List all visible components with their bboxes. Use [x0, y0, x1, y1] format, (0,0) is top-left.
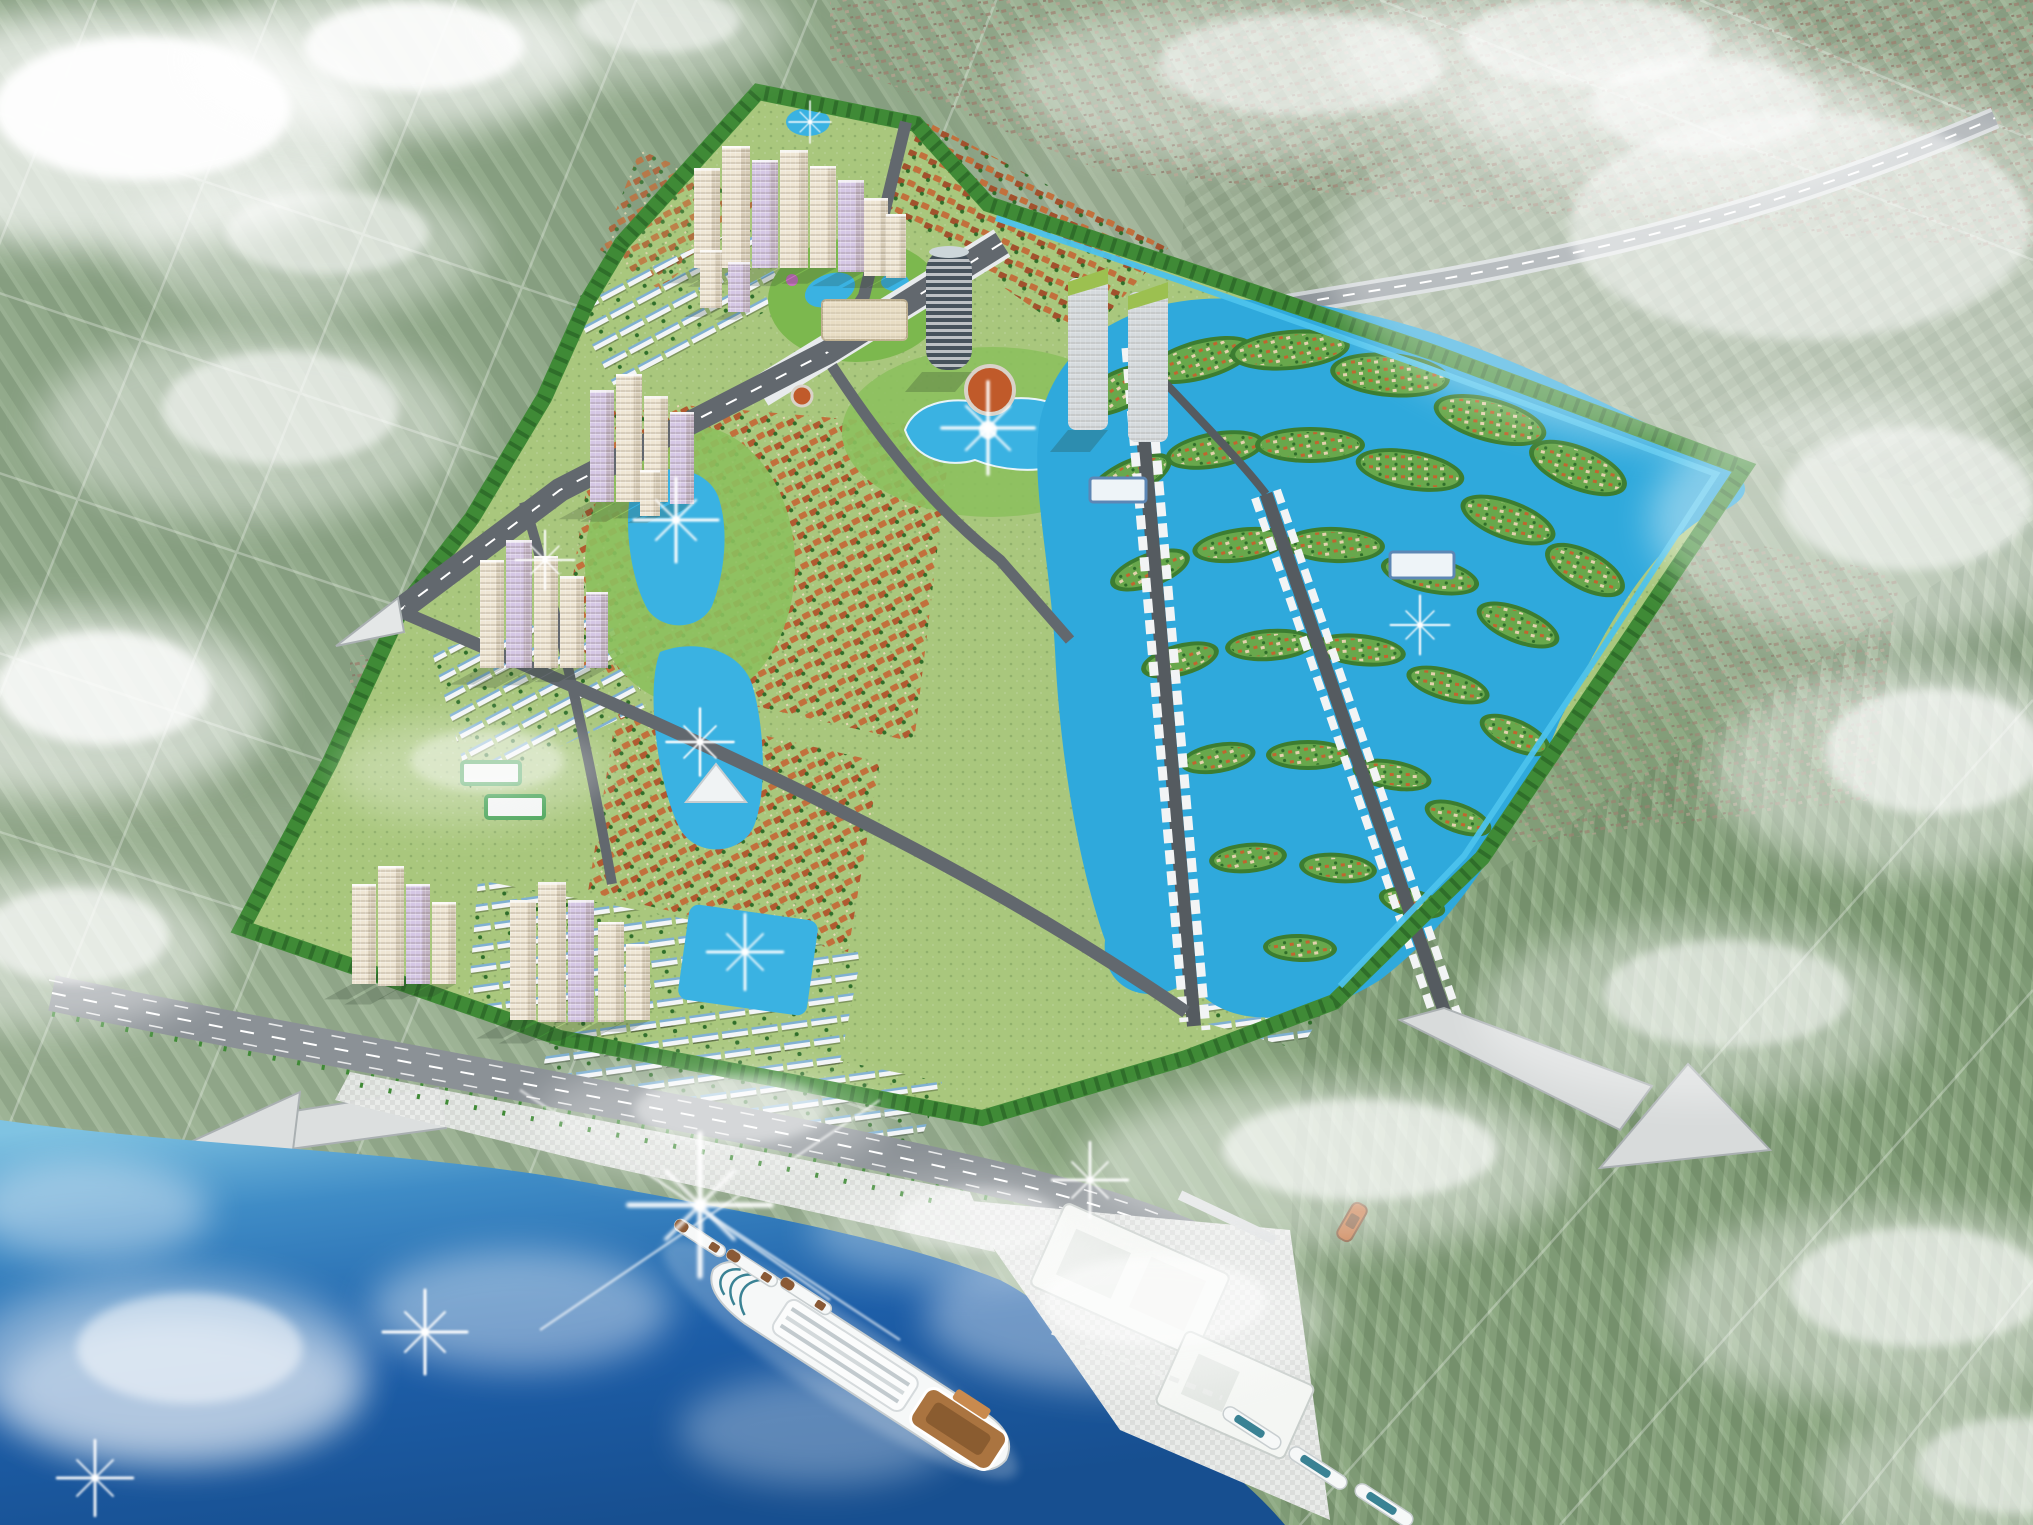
cloud: [1475, 920, 1925, 1100]
aerial-city-render: [0, 0, 2033, 1525]
cloud: [40, 330, 470, 520]
lagoon-island: [1255, 427, 1365, 463]
cloud: [1470, 40, 1890, 200]
cloud: [330, 718, 610, 822]
cloud: [1080, 1080, 1580, 1250]
plaza-circle-small: [792, 386, 812, 406]
cloud: [120, 175, 490, 315]
pool-rect: [677, 903, 819, 1016]
cloud: [535, 1062, 885, 1178]
cloud: [810, 1175, 1110, 1285]
plaza-circle: [966, 366, 1014, 414]
aerial-render-figure: [0, 0, 2033, 1525]
hotel-building: [822, 300, 907, 340]
